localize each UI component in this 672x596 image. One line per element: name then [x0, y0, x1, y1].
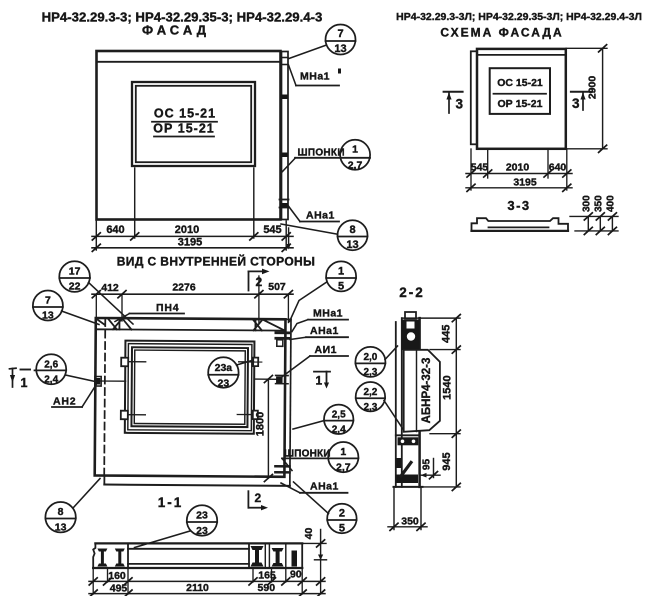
svg-text:1-1: 1-1	[158, 495, 184, 510]
svg-text:СХЕМА ФАСАДА: СХЕМА ФАСАДА	[440, 26, 563, 40]
svg-text:3195: 3195	[178, 236, 202, 248]
svg-text:945: 945	[441, 452, 453, 470]
svg-text:2: 2	[255, 491, 262, 505]
svg-text:2,3: 2,3	[363, 402, 377, 413]
svg-text:507: 507	[268, 281, 286, 293]
svg-text:2: 2	[339, 508, 345, 520]
svg-text:23: 23	[196, 525, 208, 537]
svg-text:3: 3	[572, 96, 580, 111]
svg-text:2,2: 2,2	[363, 387, 377, 398]
svg-text:8: 8	[349, 224, 355, 236]
svg-text:95: 95	[422, 459, 433, 471]
svg-text:412: 412	[101, 282, 119, 294]
svg-text:545: 545	[263, 224, 281, 236]
svg-text:5: 5	[338, 280, 344, 292]
svg-text:1540: 1540	[442, 375, 454, 399]
svg-text:545: 545	[471, 162, 489, 174]
svg-text:3-3: 3-3	[507, 198, 530, 213]
svg-text:17: 17	[69, 266, 81, 278]
svg-text:165: 165	[258, 569, 276, 581]
svg-text:2,4: 2,4	[44, 374, 58, 385]
svg-text:1: 1	[338, 265, 344, 277]
svg-text:ФАСАД: ФАСАД	[142, 23, 210, 38]
svg-text:90: 90	[290, 569, 302, 581]
svg-text:495: 495	[110, 582, 128, 594]
svg-text:22: 22	[69, 281, 81, 293]
svg-text:ВИД С ВНУТРЕННЕЙ СТОРОНЫ: ВИД С ВНУТРЕННЕЙ СТОРОНЫ	[117, 254, 316, 269]
svg-text:МНа1: МНа1	[300, 71, 330, 83]
svg-text:400: 400	[606, 195, 617, 212]
svg-text:23: 23	[196, 510, 208, 522]
svg-text:ОС 15-21: ОС 15-21	[154, 107, 216, 121]
svg-text:ОС 15-21: ОС 15-21	[497, 77, 543, 89]
svg-text:ШПОНКИ: ШПОНКИ	[298, 148, 345, 159]
svg-text:13: 13	[55, 522, 67, 534]
svg-text:445: 445	[440, 325, 452, 343]
svg-text:7: 7	[337, 28, 343, 40]
svg-text:350: 350	[594, 195, 605, 212]
svg-text:8: 8	[58, 506, 64, 518]
svg-text:300: 300	[582, 195, 593, 212]
svg-text:АНа1: АНа1	[310, 325, 339, 337]
svg-text:7: 7	[45, 295, 51, 307]
svg-text:ОР 15-21: ОР 15-21	[498, 98, 543, 110]
svg-text:2010: 2010	[506, 162, 530, 174]
svg-text:5: 5	[339, 523, 345, 535]
svg-text:23а: 23а	[215, 362, 233, 374]
svg-text:2900: 2900	[587, 76, 599, 100]
svg-text:АИ1: АИ1	[315, 344, 337, 356]
svg-text:АНа1: АНа1	[306, 210, 335, 222]
svg-text:1: 1	[21, 376, 28, 390]
svg-text:1800: 1800	[255, 412, 267, 436]
svg-text:13: 13	[42, 310, 54, 322]
svg-text:1: 1	[316, 374, 323, 388]
svg-text:2010: 2010	[175, 224, 199, 236]
svg-text:1: 1	[352, 144, 358, 156]
svg-text:ПН4: ПН4	[156, 302, 179, 314]
svg-text:2110: 2110	[186, 582, 209, 594]
svg-text:350: 350	[401, 516, 419, 528]
svg-text:2-2: 2-2	[399, 285, 425, 300]
svg-text:ОР 15-21: ОР 15-21	[153, 122, 215, 136]
svg-text:640: 640	[106, 224, 124, 236]
svg-text:13: 13	[334, 43, 346, 55]
svg-text:2,7: 2,7	[336, 462, 351, 474]
svg-text:АБНР4-32-3: АБНР4-32-3	[421, 358, 433, 424]
svg-text:640: 640	[549, 162, 567, 174]
svg-text:3195: 3195	[513, 176, 537, 188]
svg-text:2,6: 2,6	[44, 359, 58, 370]
svg-text:МНа1: МНа1	[313, 308, 343, 320]
svg-text:23: 23	[218, 378, 230, 390]
svg-text:1: 1	[340, 446, 346, 458]
svg-text:40: 40	[303, 528, 315, 540]
svg-text:3: 3	[456, 97, 464, 112]
svg-text:13: 13	[346, 239, 358, 251]
svg-text:2,4: 2,4	[332, 424, 346, 435]
svg-text:2,3: 2,3	[363, 367, 377, 378]
svg-text:АН2: АН2	[53, 396, 76, 408]
svg-text:590: 590	[258, 582, 276, 594]
svg-text:2: 2	[256, 275, 263, 289]
svg-text:АНа1: АНа1	[310, 480, 339, 492]
svg-text:2,5: 2,5	[332, 409, 346, 420]
svg-text:2,0: 2,0	[363, 352, 377, 363]
svg-text:НР4-32.29.3-3Л; НР4-32.29.35-3: НР4-32.29.3-3Л; НР4-32.29.35-3Л; НР4-32.…	[396, 11, 642, 23]
svg-text:2276: 2276	[172, 281, 196, 293]
svg-text:2,7: 2,7	[348, 160, 363, 172]
svg-text:160: 160	[108, 570, 126, 582]
